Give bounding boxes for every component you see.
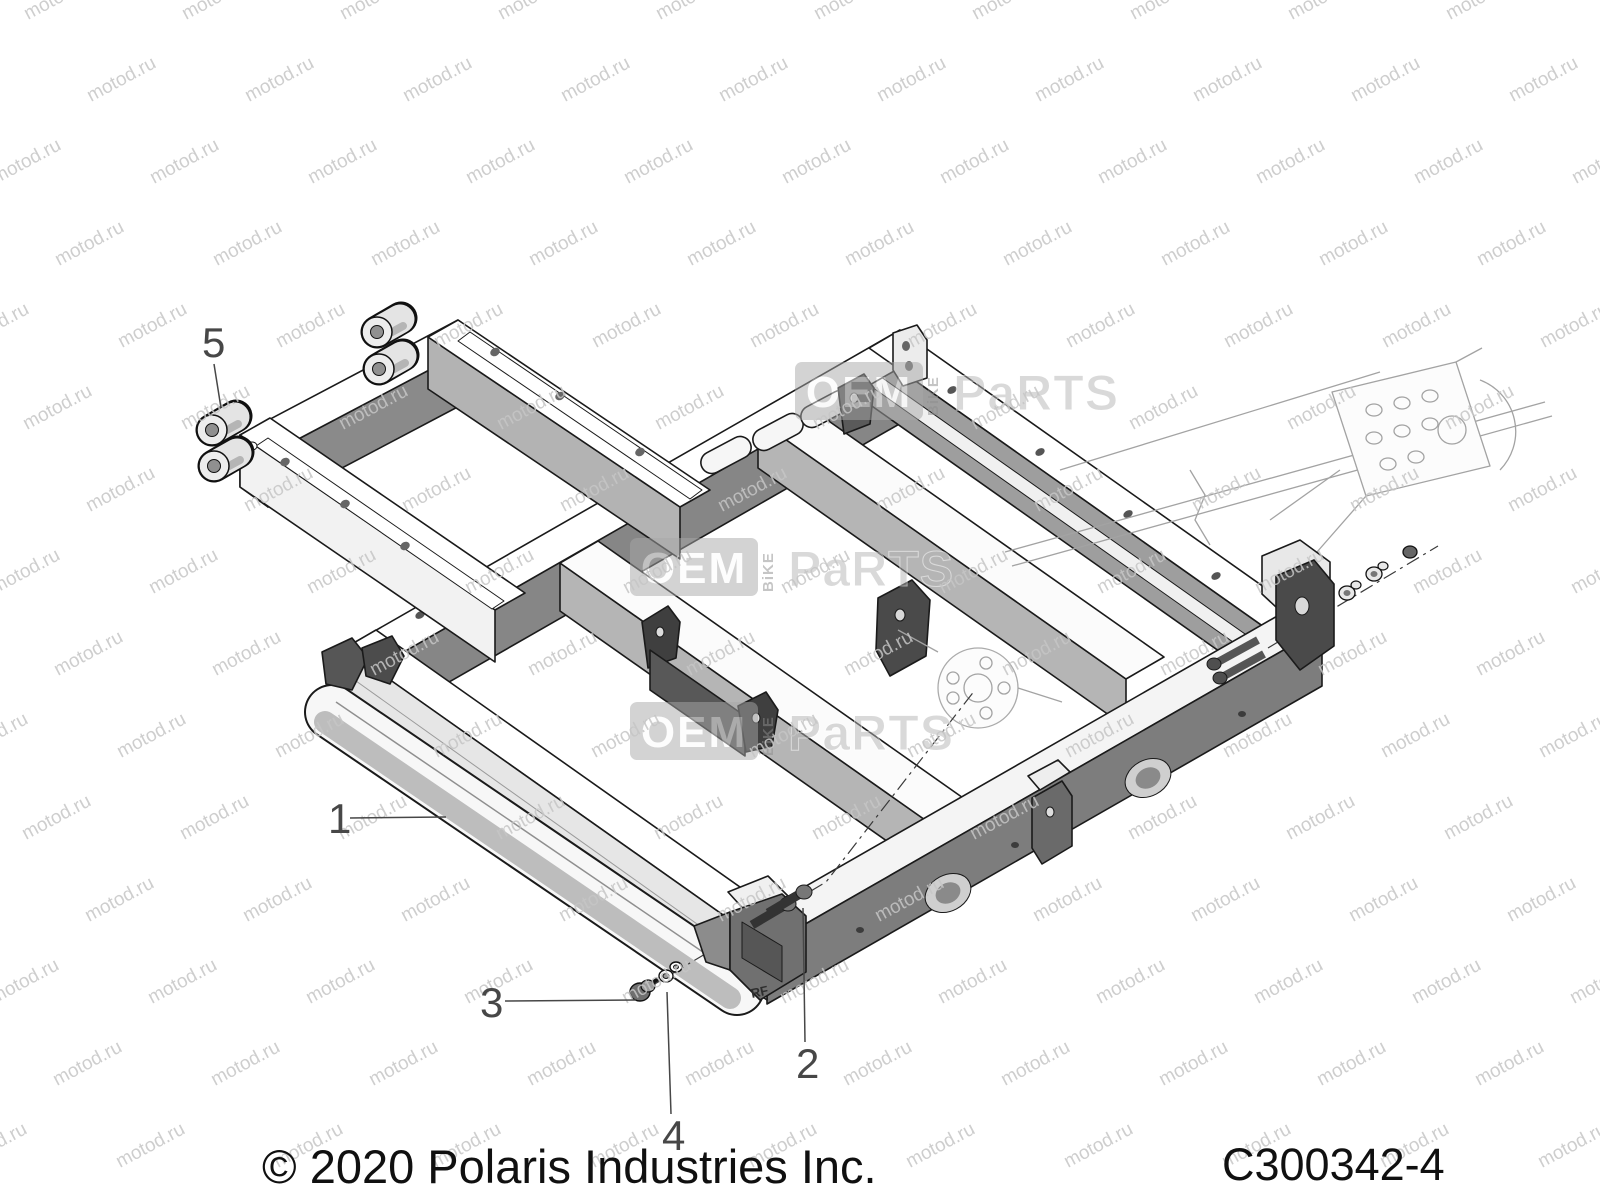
watermark-tile: motod.ru bbox=[1378, 299, 1454, 353]
watermark-tile: motod.ru bbox=[1060, 1119, 1136, 1173]
watermark-tile: motod.ru bbox=[1440, 791, 1516, 845]
watermark-tile: motod.ru bbox=[1567, 545, 1600, 599]
watermark-tile: motod.ru bbox=[1284, 0, 1360, 24]
watermark-tile: motod.ru bbox=[114, 299, 190, 353]
watermark-tile: motod.ru bbox=[19, 381, 95, 435]
watermark-tile: motod.ru bbox=[1313, 1037, 1389, 1091]
watermark-tile: motod.ru bbox=[462, 135, 538, 189]
watermark-tile: motod.ru bbox=[1471, 1037, 1547, 1091]
watermark-tile: motod.ru bbox=[145, 545, 221, 599]
watermark-tile: motod.ru bbox=[365, 1037, 441, 1091]
watermark-tile: motod.ru bbox=[302, 955, 378, 1009]
watermark-tile: motod.ru bbox=[113, 709, 189, 763]
watermark-tile: motod.ru bbox=[1187, 873, 1263, 927]
watermark-tile: motod.ru bbox=[272, 299, 348, 353]
watermark-tile: motod.ru bbox=[144, 955, 220, 1009]
watermark-tile: motod.ru bbox=[523, 1037, 599, 1091]
watermark-tile: motod.ru bbox=[399, 53, 475, 107]
watermark-tile: motod.ru bbox=[1029, 873, 1105, 927]
watermark-tile: motod.ru bbox=[715, 53, 791, 107]
watermark-tile: motod.ru bbox=[51, 217, 127, 271]
watermark-tile: motod.ru bbox=[397, 873, 473, 927]
watermark-tile: motod.ru bbox=[178, 0, 254, 24]
watermark-tile: motod.ru bbox=[1347, 53, 1423, 107]
watermark-tile: motod.ru bbox=[82, 463, 158, 517]
footer: © 2020 Polaris Industries Inc. C300342-4 bbox=[262, 1139, 1445, 1193]
watermark-tile: motod.ru bbox=[1189, 53, 1265, 107]
watermark-tile: motod.ru bbox=[1282, 791, 1358, 845]
watermark-tile: motod.ru bbox=[18, 791, 94, 845]
watermark-tile: motod.ru bbox=[902, 1119, 978, 1173]
watermark-tile: motod.ru bbox=[49, 1037, 125, 1091]
watermark-tile: motod.ru bbox=[1094, 135, 1170, 189]
brand-bike-text: BiKE bbox=[760, 552, 777, 592]
parts-diagram-canvas: RF bbox=[0, 0, 1600, 1200]
watermark-tile: motod.ru bbox=[1408, 955, 1484, 1009]
watermark-tile: motod.ru bbox=[1442, 0, 1518, 24]
watermark-tile: motod.ru bbox=[746, 299, 822, 353]
callout-3-label: 3 bbox=[480, 979, 503, 1026]
watermark-tile: motod.ru bbox=[652, 0, 728, 24]
watermark-tile: motod.ru bbox=[176, 791, 252, 845]
watermark-tile: motod.ru bbox=[1155, 1037, 1231, 1091]
watermark-tile: motod.ru bbox=[651, 381, 727, 435]
watermark-tile: motod.ru bbox=[778, 135, 854, 189]
watermark-tile: motod.ru bbox=[239, 873, 315, 927]
watermark-tile: motod.ru bbox=[841, 217, 917, 271]
watermark-tile: motod.ru bbox=[936, 135, 1012, 189]
watermark-tile: motod.ru bbox=[1252, 135, 1328, 189]
watermark-tile: motod.ru bbox=[557, 53, 633, 107]
watermark-tile: motod.ru bbox=[0, 463, 1, 517]
watermark-tile: motod.ru bbox=[1535, 709, 1600, 763]
watermark-tile: motod.ru bbox=[50, 627, 126, 681]
watermark-tile: motod.ru bbox=[1188, 463, 1264, 517]
watermark-tile: motod.ru bbox=[1566, 955, 1600, 1009]
watermark-tile: motod.ru bbox=[0, 53, 2, 107]
callout-5-label: 5 bbox=[202, 319, 225, 366]
page: { "watermark": { "tile_text": "motod.ru"… bbox=[0, 0, 1600, 1200]
copyright-text: © 2020 Polaris Industries Inc. bbox=[262, 1140, 877, 1193]
watermark-tile: motod.ru bbox=[1124, 791, 1200, 845]
brand-bike-text: BiKE bbox=[925, 376, 942, 416]
watermark-tile: motod.ru bbox=[1345, 873, 1421, 927]
watermark-tile: motod.ru bbox=[1410, 135, 1486, 189]
watermark-tile: motod.ru bbox=[620, 135, 696, 189]
callout-1-label: 1 bbox=[328, 795, 351, 842]
watermark-tile: motod.ru bbox=[1126, 0, 1202, 24]
watermark-tile: motod.ru bbox=[304, 135, 380, 189]
callout-4-leader bbox=[667, 992, 671, 1114]
watermark-tile: motod.ru bbox=[1536, 299, 1600, 353]
watermark-tile: motod.ru bbox=[20, 0, 96, 24]
watermark-tile: motod.ru bbox=[112, 1119, 188, 1173]
callout-3-leader bbox=[505, 1000, 636, 1001]
watermark-tile: motod.ru bbox=[81, 873, 157, 927]
watermark-tile: motod.ru bbox=[1157, 217, 1233, 271]
watermark-tile: motod.ru bbox=[588, 299, 664, 353]
watermark-tile: motod.ru bbox=[810, 0, 886, 24]
bushing bbox=[199, 451, 240, 481]
watermark-tile: motod.ru bbox=[146, 135, 222, 189]
watermark-tile: motod.ru bbox=[1031, 53, 1107, 107]
watermark-tile: motod.ru bbox=[1505, 53, 1581, 107]
watermark-tile: motod.ru bbox=[681, 1037, 757, 1091]
watermark-tile: motod.ru bbox=[336, 0, 412, 24]
watermark-tile: motod.ru bbox=[999, 217, 1075, 271]
watermark-tile: motod.ru bbox=[494, 0, 570, 24]
watermark-tile: motod.ru bbox=[683, 217, 759, 271]
watermark-tile: motod.ru bbox=[0, 955, 63, 1009]
watermark-tile: motod.ru bbox=[1409, 545, 1485, 599]
callout-2-label: 2 bbox=[796, 1040, 819, 1087]
watermark-tile: motod.ru bbox=[1504, 463, 1580, 517]
watermark-tile: motod.ru bbox=[0, 545, 64, 599]
watermark-tile: motod.ru bbox=[1377, 709, 1453, 763]
watermark-tile: motod.ru bbox=[1092, 955, 1168, 1009]
watermark-tile: motod.ru bbox=[997, 1037, 1073, 1091]
washers bbox=[1339, 546, 1417, 600]
watermark-tile: motod.ru bbox=[367, 217, 443, 271]
watermark-tile: motod.ru bbox=[1472, 627, 1548, 681]
watermark-tile: motod.ru bbox=[839, 1037, 915, 1091]
watermark-tile: motod.ru bbox=[524, 627, 600, 681]
watermark-tile: motod.ru bbox=[207, 1037, 283, 1091]
watermark-tile: motod.ru bbox=[209, 217, 285, 271]
watermark-tile: motod.ru bbox=[0, 135, 65, 189]
watermark-tile: motod.ru bbox=[934, 955, 1010, 1009]
watermark-tile: motod.ru bbox=[1534, 1119, 1600, 1173]
watermark-tile: motod.ru bbox=[1220, 299, 1296, 353]
watermark-tile: motod.ru bbox=[398, 463, 474, 517]
watermark-tile: motod.ru bbox=[1568, 135, 1600, 189]
watermark-tile: motod.ru bbox=[83, 53, 159, 107]
drawing-code: C300342-4 bbox=[1222, 1139, 1445, 1190]
watermark-tile: motod.ru bbox=[1503, 873, 1579, 927]
watermark-tile: motod.ru bbox=[1473, 217, 1549, 271]
watermark-tile: motod.ru bbox=[873, 53, 949, 107]
watermark-tile: motod.ru bbox=[650, 791, 726, 845]
watermark-tile: motod.ru bbox=[241, 53, 317, 107]
watermark-tile: motod.ru bbox=[1315, 217, 1391, 271]
watermark-tile: motod.ru bbox=[968, 0, 1044, 24]
watermark-tile: motod.ru bbox=[0, 299, 33, 353]
watermark-tile: motod.ru bbox=[0, 1119, 31, 1173]
callout-1-leader bbox=[350, 817, 446, 818]
watermark-tile: motod.ru bbox=[208, 627, 284, 681]
watermark-tile: motod.ru bbox=[525, 217, 601, 271]
watermark-tile: motod.ru bbox=[1250, 955, 1326, 1009]
watermark-tile: motod.ru bbox=[1125, 381, 1201, 435]
watermark-tile: motod.ru bbox=[0, 709, 32, 763]
watermark-tile: motod.ru bbox=[1062, 299, 1138, 353]
